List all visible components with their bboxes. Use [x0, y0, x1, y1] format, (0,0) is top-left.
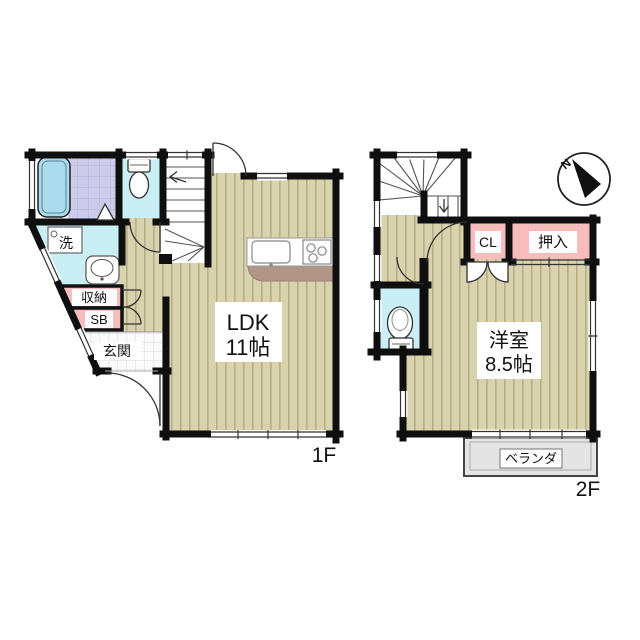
stove	[303, 240, 331, 264]
floor1-label: 1F	[312, 444, 337, 467]
veranda-label: ベランダ	[505, 451, 557, 466]
floor2-label: 2F	[576, 478, 601, 501]
bathroom-tile-floor	[68, 152, 119, 222]
vanity-sink	[86, 256, 119, 284]
floor-plan-svg: 洗 収納 SB 玄関 LDK 11帖 1F	[0, 0, 640, 640]
room-name-label: 洋室	[489, 329, 529, 352]
storage-label: 収納	[81, 290, 107, 305]
bathtub	[38, 157, 70, 217]
floor-plan-image: 洗 収納 SB 玄関 LDK 11帖 1F	[0, 0, 640, 640]
toilet-fixture-1f	[128, 159, 150, 198]
closet-label: CL	[479, 234, 497, 250]
laundry-label: 洗	[59, 235, 73, 251]
stair-corner-wall	[159, 254, 172, 264]
kitchen-sink	[252, 241, 290, 263]
shoebox-label: SB	[90, 312, 107, 327]
oshiire-label: 押入	[538, 234, 568, 251]
entrance-label: 玄関	[103, 343, 131, 359]
room-size-label: 8.5帖	[485, 353, 533, 376]
compass: N	[558, 153, 610, 205]
ldk-name-label: LDK	[227, 310, 270, 335]
hall-floor-1f	[119, 218, 166, 335]
toilet-fixture-2f	[388, 307, 414, 351]
faucet	[269, 263, 273, 267]
ldk-size-label: 11帖	[226, 335, 271, 360]
kitchen-counter	[247, 238, 333, 281]
understair-floor	[163, 263, 211, 435]
